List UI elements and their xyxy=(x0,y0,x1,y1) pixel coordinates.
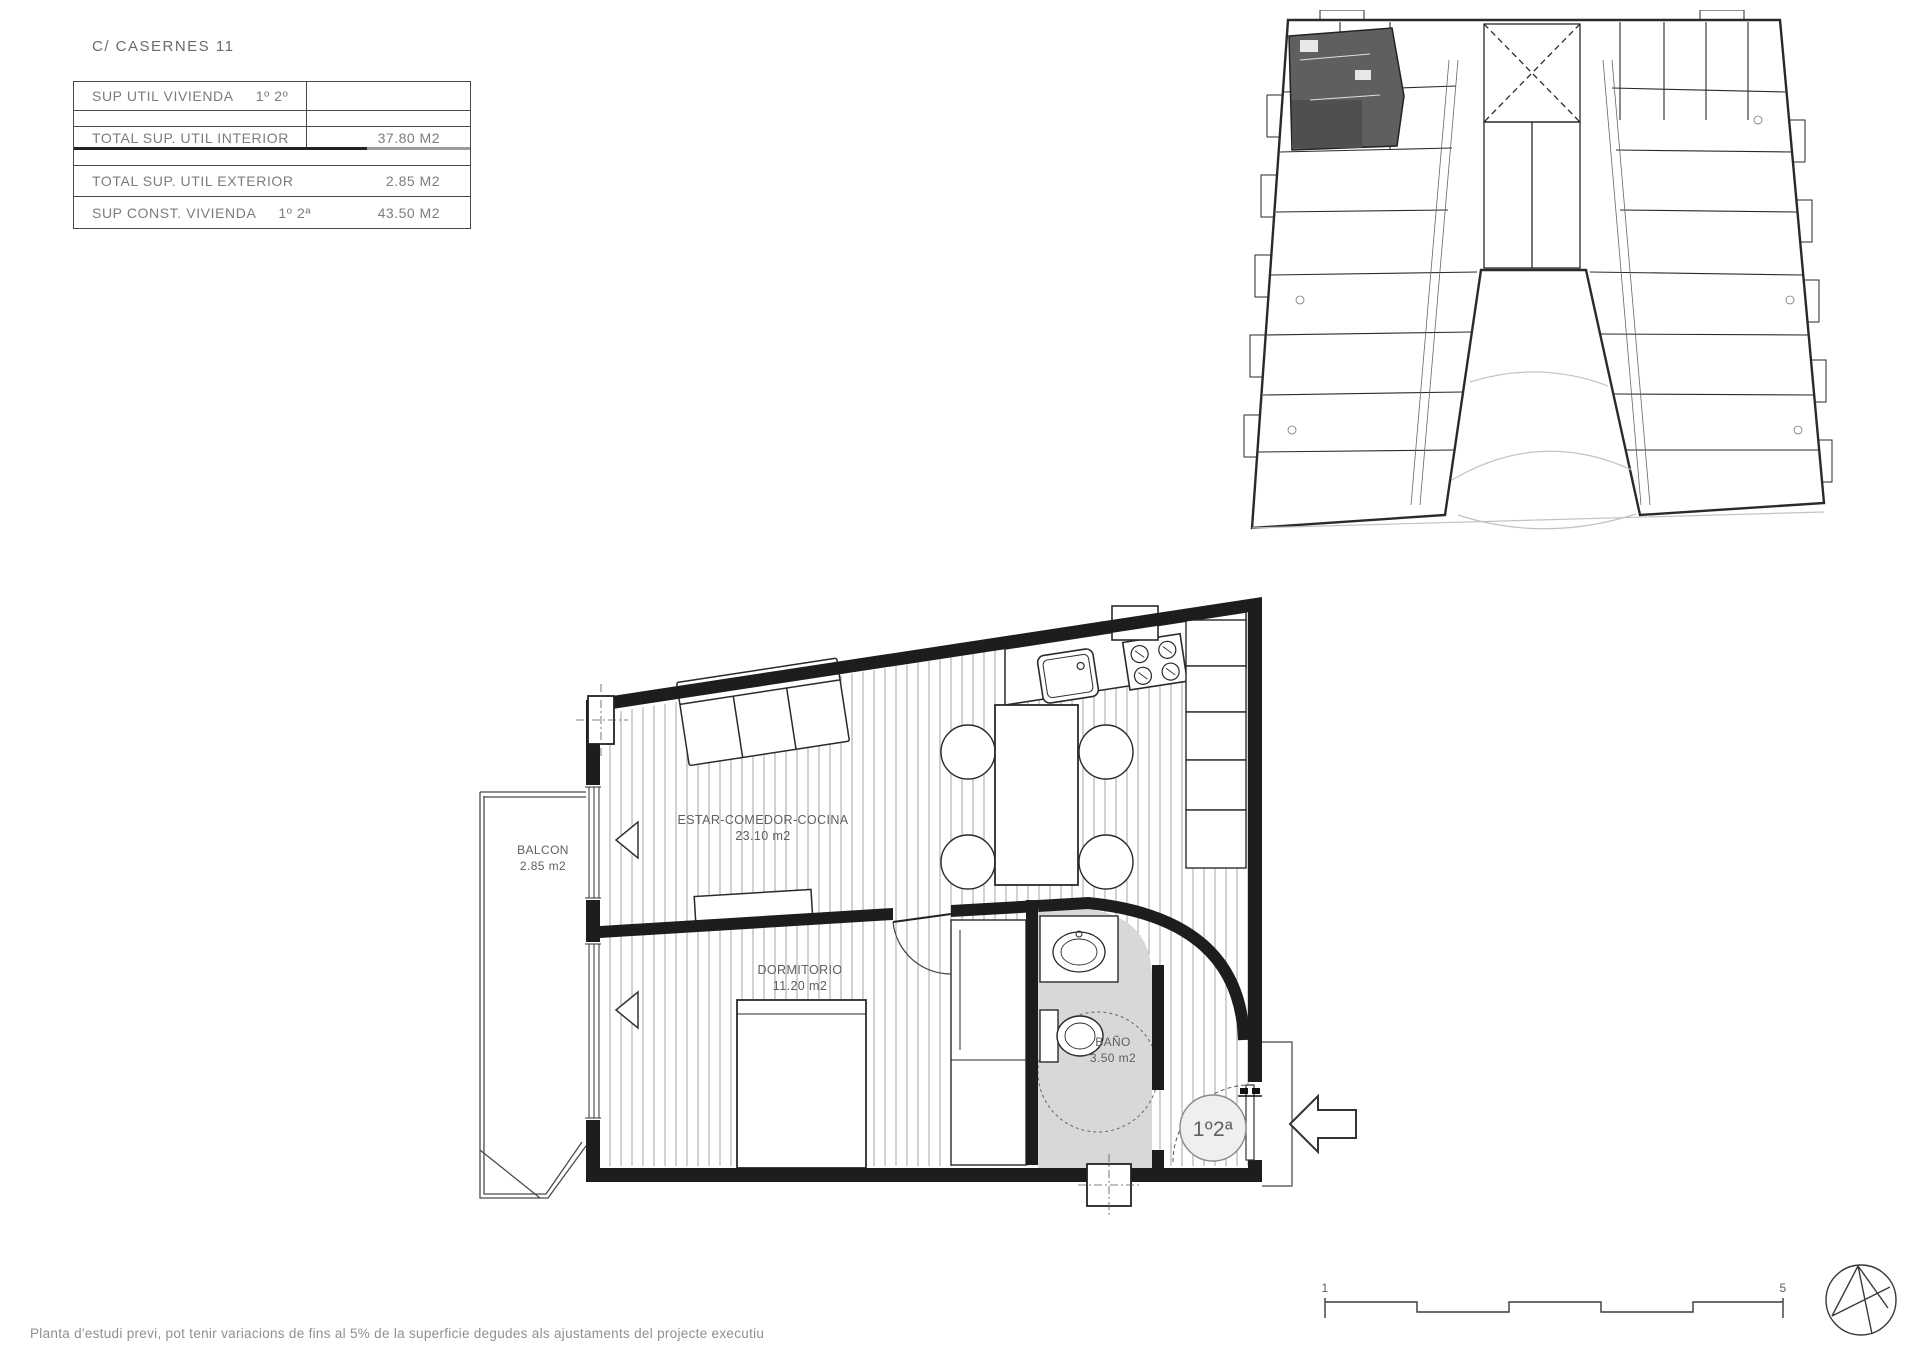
room-label-estar: ESTAR-COMEDOR-COCINA xyxy=(678,813,849,827)
row-sublabel: 1º 2ª xyxy=(278,205,311,221)
exterior-landing xyxy=(1262,1042,1292,1186)
plan-sheet: C/ CASERNES 11 SUP UTIL VIVIENDA1º 2º TO… xyxy=(0,0,1920,1357)
bed xyxy=(737,1000,866,1168)
bathroom: BAÑO 3.50 m2 xyxy=(1038,909,1158,1168)
room-label-dormitorio: DORMITORIO xyxy=(757,963,842,977)
page-title: C/ CASERNES 11 xyxy=(92,38,234,55)
table-spacer-row xyxy=(74,111,470,127)
entrance-arrow-icon xyxy=(1290,1096,1356,1152)
scale-end-label: 5 xyxy=(1779,1281,1786,1295)
row-value: 2.85 M2 xyxy=(306,166,470,196)
table-spacer-row xyxy=(74,148,470,166)
room-area-bano: 3.50 m2 xyxy=(1090,1051,1136,1065)
north-compass-icon xyxy=(1826,1265,1896,1335)
table-divider xyxy=(74,147,470,150)
site-key-plan xyxy=(1230,10,1860,540)
row-value: 43.50 M2 xyxy=(311,197,470,228)
room-area-dormitorio: 11.20 m2 xyxy=(773,979,827,993)
window-glazing xyxy=(585,787,601,1118)
surface-area-table: SUP UTIL VIVIENDA1º 2º TOTAL SUP. UTIL I… xyxy=(73,81,471,229)
room-label-bano: BAÑO xyxy=(1095,1035,1131,1049)
scale-start-label: 1 xyxy=(1321,1281,1328,1295)
footer-disclaimer: Planta d'estudi previ, pot tenir variaci… xyxy=(30,1326,764,1341)
highlighted-unit xyxy=(1289,28,1404,150)
row-value xyxy=(306,82,470,110)
row-label: SUP UTIL VIVIENDA xyxy=(92,88,234,104)
room-label-balcon: BALCON xyxy=(517,843,569,857)
row-label: TOTAL SUP. UTIL INTERIOR xyxy=(92,130,289,146)
washbasin-icon xyxy=(1040,916,1118,982)
scale-and-compass: 1 5 xyxy=(1300,1255,1910,1350)
scale-bar xyxy=(1325,1298,1783,1318)
table-row: TOTAL SUP. UTIL INTERIOR 37.80 M2 xyxy=(74,127,470,148)
row-label: SUP CONST. VIVIENDA xyxy=(92,205,256,221)
room-area-estar: 23.10 m2 xyxy=(735,829,790,843)
tall-cabinets xyxy=(1186,620,1246,868)
unit-label: 1º2ª xyxy=(1193,1118,1233,1141)
table-row: SUP CONST. VIVIENDA1º 2ª 43.50 M2 xyxy=(74,197,470,228)
row-label: TOTAL SUP. UTIL EXTERIOR xyxy=(92,173,294,189)
room-area-balcon: 2.85 m2 xyxy=(520,859,566,873)
row-sublabel: 1º 2º xyxy=(256,88,289,104)
wardrobe xyxy=(951,920,1026,1165)
table-row: SUP UTIL VIVIENDA1º 2º xyxy=(74,82,470,111)
sink-icon xyxy=(1037,648,1100,704)
row-value: 37.80 M2 xyxy=(306,127,470,148)
apartment-floor-plan: BALCON 2.85 m2 xyxy=(460,575,1380,1225)
table-row: TOTAL SUP. UTIL EXTERIOR 2.85 M2 xyxy=(74,166,470,197)
stove-icon xyxy=(1123,634,1188,690)
